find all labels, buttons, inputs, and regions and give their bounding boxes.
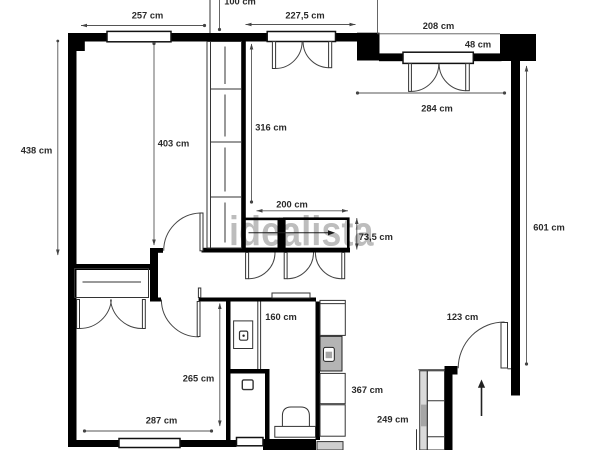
svg-text:100 cm: 100 cm xyxy=(224,0,256,7)
svg-text:403 cm: 403 cm xyxy=(158,139,190,149)
svg-text:265 cm: 265 cm xyxy=(183,374,215,384)
svg-text:438 cm: 438 cm xyxy=(21,146,53,156)
svg-text:257 cm: 257 cm xyxy=(132,11,164,21)
svg-text:160 cm: 160 cm xyxy=(265,312,297,322)
svg-text:123 cm: 123 cm xyxy=(447,312,479,322)
svg-text:48 cm: 48 cm xyxy=(465,40,491,50)
svg-text:601 cm: 601 cm xyxy=(533,223,565,233)
svg-text:287 cm: 287 cm xyxy=(146,416,178,426)
svg-text:208 cm: 208 cm xyxy=(423,21,455,31)
svg-text:284 cm: 284 cm xyxy=(421,104,453,114)
svg-text:249 cm: 249 cm xyxy=(377,415,409,425)
svg-text:227,5 cm: 227,5 cm xyxy=(285,11,324,21)
svg-text:316 cm: 316 cm xyxy=(255,123,287,133)
svg-text:367 cm: 367 cm xyxy=(352,385,384,395)
